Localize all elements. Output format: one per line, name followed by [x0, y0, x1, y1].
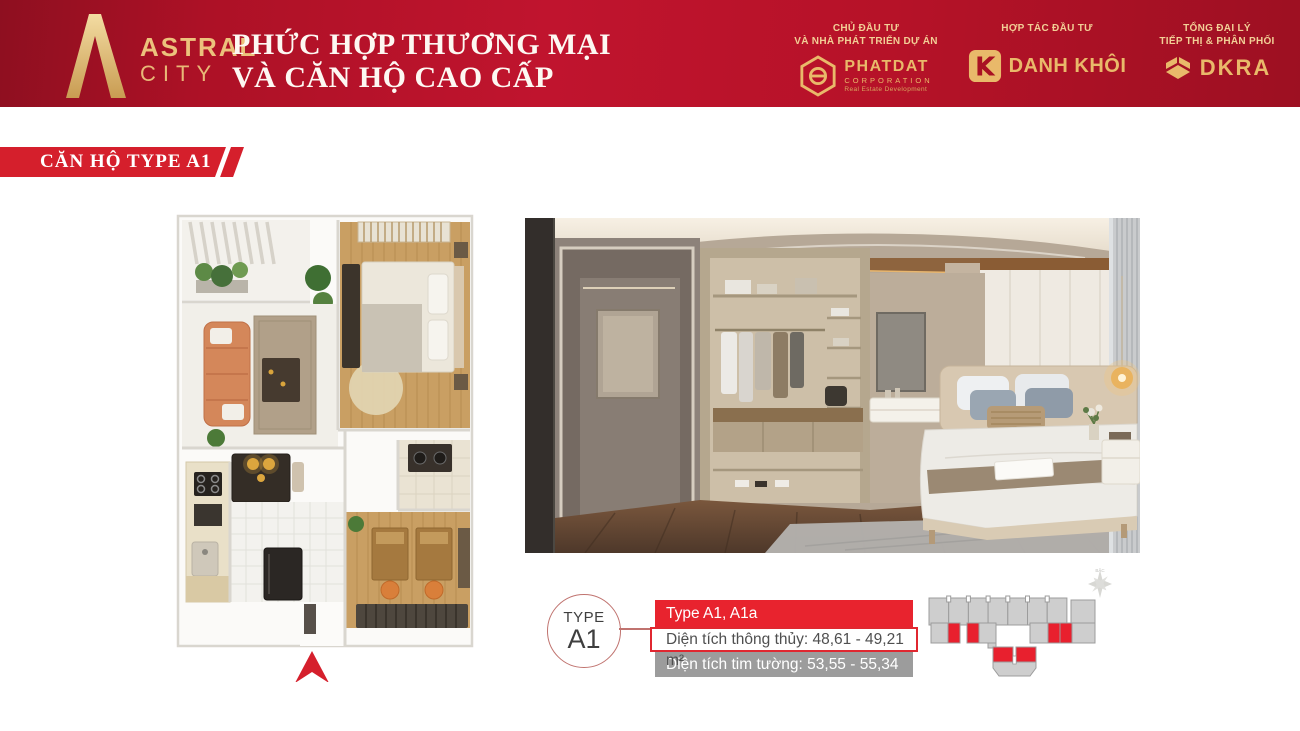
- page-title: PHỨC HỢP THƯƠNG MẠI VÀ CĂN HỘ CAO CẤP: [232, 28, 611, 94]
- partner-danhkhoi-role: HỢP TÁC ĐẦU TƯ: [962, 22, 1132, 35]
- floor-plan-illustration: [170, 212, 490, 682]
- phatdat-name: PHATDAT: [844, 59, 932, 75]
- phatdat-subname: CORPORATION: [844, 77, 932, 85]
- brochure-page: ASTRAL CITY PHỨC HỢP THƯƠNG MẠI VÀ CĂN H…: [0, 0, 1300, 731]
- partner-dkra: TỔNG ĐẠI LÝ TIẾP THỊ & PHÂN PHỐI DKRA: [1132, 22, 1300, 81]
- type-badge-top: TYPE: [563, 610, 604, 625]
- astral-lambda-icon: [60, 10, 132, 100]
- bedroom-area: [340, 222, 470, 428]
- foreground-panel: [525, 218, 555, 553]
- entrance-arrow-icon: [295, 651, 329, 682]
- page-title-line2: VÀ CĂN HỘ CAO CẤP: [232, 61, 611, 94]
- type-badge-bottom: A1: [567, 626, 600, 653]
- nightstand: [1102, 432, 1140, 484]
- partner-phatdat: CHỦ ĐẦU TƯ VÀ NHÀ PHÁT TRIỂN DỰ ÁN PHATD…: [781, 22, 951, 97]
- net-area-row: Diện tích thông thủy: 48,61 - 49,21 m²: [650, 627, 918, 652]
- section-ribbon-label: CĂN HỘ TYPE A1: [0, 147, 226, 177]
- role-line: CHỦ ĐẦU TƯ: [781, 22, 951, 35]
- unit-info-box: Type A1, A1a Diện tích thông thủy: 48,61…: [655, 600, 913, 677]
- partner-dkra-role: TỔNG ĐẠI LÝ TIẾP THỊ & PHÂN PHỐI: [1132, 22, 1300, 48]
- phatdat-wordmark: PHATDAT CORPORATION Real Estate Developm…: [844, 59, 932, 93]
- type-badge: TYPE A1: [547, 594, 621, 668]
- role-line: TỔNG ĐẠI LÝ: [1132, 22, 1300, 35]
- key-plan-units: [929, 596, 1095, 676]
- kitchen-area: [186, 462, 230, 602]
- role-line: TIẾP THỊ & PHÂN PHỐI: [1132, 35, 1300, 48]
- compass-icon: BẮC: [1086, 568, 1114, 598]
- gross-area-row: Diện tích tim tường: 53,55 - 55,34 m²: [655, 652, 913, 677]
- dkra-logo: DKRA: [1132, 55, 1300, 81]
- partner-phatdat-role: CHỦ ĐẦU TƯ VÀ NHÀ PHÁT TRIỂN DỰ ÁN: [781, 22, 951, 48]
- phatdat-hexagon-icon: [799, 55, 837, 97]
- study-area: [346, 512, 470, 628]
- key-plan-diagram: BẮC: [928, 568, 1118, 680]
- header-banner: ASTRAL CITY PHỨC HỢP THƯƠNG MẠI VÀ CĂN H…: [0, 0, 1300, 107]
- dkra-chevron-icon: [1163, 55, 1193, 81]
- role-line: VÀ NHÀ PHÁT TRIỂN DỰ ÁN: [781, 35, 951, 48]
- dkra-name: DKRA: [1200, 55, 1272, 81]
- page-title-line1: PHỨC HỢP THƯƠNG MẠI: [232, 28, 611, 61]
- phatdat-tagline: Real Estate Development: [844, 87, 932, 94]
- living-area: [182, 304, 338, 448]
- bedroom-photo-illustration: [525, 218, 1140, 553]
- closet: [700, 248, 870, 503]
- section-ribbon: CĂN HỘ TYPE A1: [0, 147, 226, 177]
- tiled-floor: [230, 502, 345, 602]
- role-line: HỢP TÁC ĐẦU TƯ: [962, 22, 1132, 35]
- unit-type-row: Type A1, A1a: [655, 600, 913, 627]
- floor-plan-image: [170, 212, 490, 682]
- danhkhoi-logo: DANH KHÔI: [962, 49, 1132, 83]
- brand-logo: ASTRAL CITY: [60, 6, 250, 102]
- bathroom-area: [398, 440, 470, 510]
- key-plan: BẮC: [928, 568, 1118, 680]
- bedroom-photo: [525, 218, 1140, 553]
- phatdat-logo: PHATDAT CORPORATION Real Estate Developm…: [781, 55, 951, 97]
- danhkhoi-name: DANH KHÔI: [1009, 55, 1127, 78]
- balcony-area: [182, 220, 310, 300]
- entrance-area: [300, 602, 345, 646]
- partner-danhkhoi: HỢP TÁC ĐẦU TƯ DANH KHÔI: [962, 22, 1132, 83]
- danhkhoi-k-icon: [968, 49, 1002, 83]
